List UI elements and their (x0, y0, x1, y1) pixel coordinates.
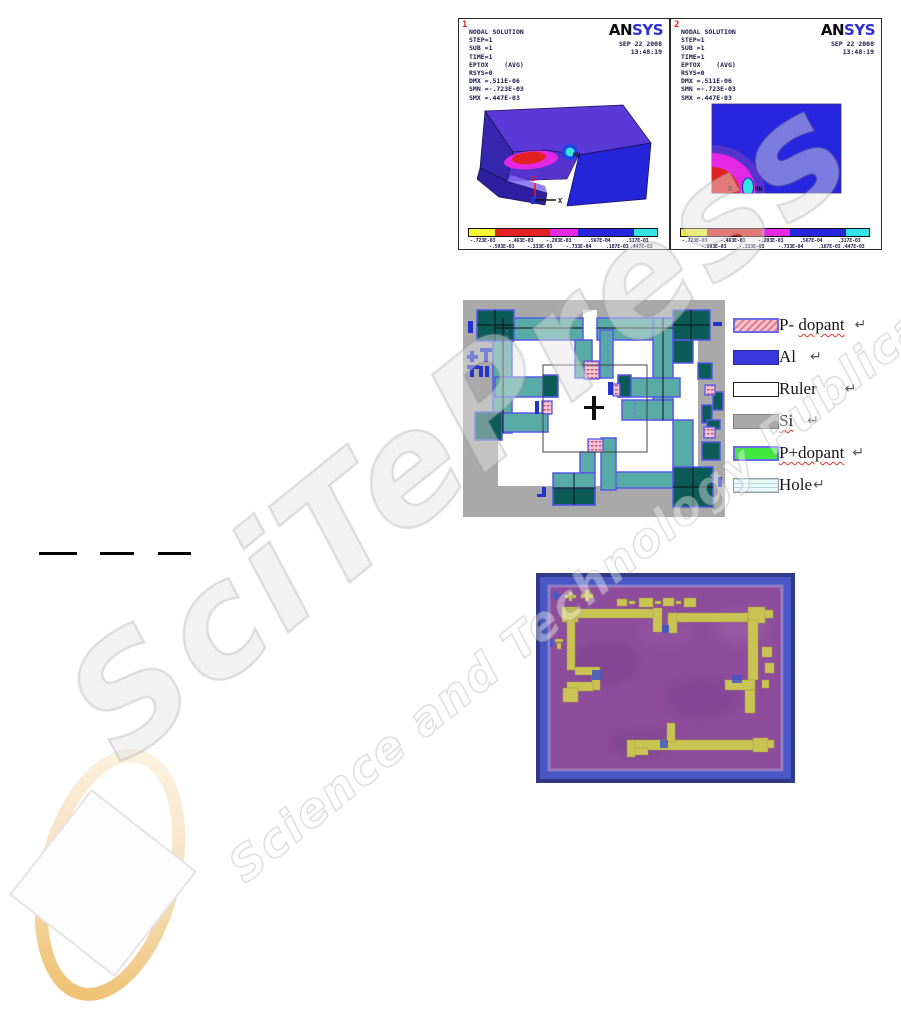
beam (600, 330, 613, 378)
pad (543, 375, 558, 397)
dopant-anchor (584, 361, 599, 379)
return-mark-icon: ↵ (807, 413, 819, 429)
colorbar-segment-red (707, 229, 762, 236)
axis-x-label: X (558, 197, 563, 205)
info-line: RSYS=0 (469, 69, 524, 77)
triad-origin-mark (531, 196, 535, 204)
panel-number: 2 (674, 20, 679, 30)
label-text: Ruler (779, 379, 817, 398)
ansys-logo-an: AN (609, 21, 632, 39)
alignment-mark (535, 401, 539, 414)
date-time: SEP 22 2008 13:48:19 (619, 40, 662, 56)
contour-colorbar: -.723E-03 -.463E-03 -.203E-03 .567E-04 .… (680, 228, 870, 252)
paper-page: 1 ANSYS SEP 22 2008 13:48:19 NODAL SOLUT… (0, 0, 901, 1025)
info-line: NODAL SOLUTION (469, 28, 524, 36)
swatch-p-dopant (733, 318, 779, 333)
info-line: EPTOX (AVG) (681, 61, 736, 69)
label-text-wavy: Si (779, 411, 793, 430)
info-line: NODAL SOLUTION (681, 28, 736, 36)
colorbar-segments (680, 228, 870, 237)
dopant-anchor (613, 384, 620, 396)
return-mark-icon: ↵ (845, 381, 857, 397)
colorbar-tick: -.333E-03 (527, 244, 552, 250)
pad (475, 412, 502, 440)
min-marker: MN (755, 186, 763, 193)
colorbar-tick: -.733E-04 (778, 244, 803, 250)
max-marker: MX (573, 152, 581, 159)
contour-colorbar: -.723E-03 -.463E-03 -.203E-03 .567E-04 .… (468, 228, 658, 252)
info-line: STEP=1 (681, 36, 736, 44)
date-time: SEP 22 2008 13:48:19 (831, 40, 874, 56)
swatch-hole (733, 478, 779, 493)
panel-number: 1 (462, 20, 467, 30)
contour-red (684, 167, 740, 219)
colorbar-segments (468, 228, 658, 237)
label-text-wavy: dopant (798, 315, 844, 334)
swatch-p-plus-dopant (733, 446, 779, 461)
return-mark-icon: ↵ (813, 477, 825, 493)
ansys-logo: ANSYS (821, 21, 875, 39)
alignment-mark (713, 322, 722, 326)
scitepress-logo-watermark (5, 735, 205, 1025)
mask-legend: P- dopant ↵ Al ↵ Ruler ↵ Si ↵ P+dopant ↵… (733, 309, 901, 501)
legend-label: P- dopant (779, 315, 845, 335)
dopant-anchor (704, 427, 715, 438)
return-mark-icon: ↵ (855, 317, 867, 333)
colorbar-segment-yellow (681, 229, 707, 236)
colorbar-segment-magenta (550, 229, 578, 236)
info-line: STEP=1 (469, 36, 524, 44)
metal-cross (569, 592, 572, 601)
chip-photo-figure (536, 573, 795, 783)
axis-z-label: Z (714, 177, 718, 184)
colorbar-tick: .187E-03 (818, 244, 840, 250)
legend-label: Al (779, 347, 796, 367)
label-text: P- (779, 315, 798, 334)
label-text-wavy: P+dopant (779, 443, 844, 462)
swatch-ruler (733, 382, 779, 397)
colorbar-tick: -.733E-04 (566, 244, 591, 250)
alignment-mark (470, 365, 474, 377)
equation-fraction-bar (39, 552, 77, 555)
time: 13:48:19 (831, 48, 874, 56)
label-text: Hole (779, 475, 812, 494)
info-line: RSYS=0 (681, 69, 736, 77)
logo-diamond (10, 790, 195, 975)
equation-fraction-bar (100, 552, 134, 555)
crosshair-horizontal (584, 406, 604, 409)
return-mark-icon: ↵ (852, 445, 864, 461)
fem-3d-model: MX Z X (459, 79, 669, 224)
pad (673, 340, 693, 363)
alignment-mark (718, 477, 722, 487)
fem-2d-section: Z X MN (671, 79, 881, 224)
alignment-mark (479, 366, 483, 377)
ansys-panel-2: 2 ANSYS SEP 22 2008 13:48:19 NODAL SOLUT… (670, 18, 882, 250)
colorbar-segment-magenta (762, 229, 790, 236)
date: SEP 22 2008 (619, 40, 662, 48)
equation-fraction-bar (158, 552, 191, 555)
legend-item-ruler: Ruler ↵ (733, 373, 901, 405)
legend-item-hole: Hole ↵ (733, 469, 901, 501)
legend-label: Ruler (779, 379, 817, 399)
info-line: SUB =1 (681, 44, 736, 52)
info-line: EPTOX (AVG) (469, 61, 524, 69)
legend-label: P+dopant (779, 443, 844, 463)
info-line: SUB =1 (469, 44, 524, 52)
axis-z-label: Z (531, 175, 535, 183)
colorbar-tick: .447E-03 (842, 244, 864, 250)
label-text: Al (779, 347, 796, 366)
alignment-mark (608, 382, 613, 395)
alignment-mark (484, 348, 488, 362)
alignment-mark (470, 351, 474, 362)
ansys-logo-sys: SYS (844, 21, 875, 39)
colorbar-tick: -.593E-03 (701, 244, 726, 250)
pad (698, 363, 712, 379)
alignment-mark (537, 494, 546, 497)
legend-item-al: Al ↵ (733, 341, 901, 373)
blue-cross (554, 591, 557, 600)
colorbar-tick: .447E-03 (630, 244, 652, 250)
legend-item-p-plus-dopant: P+dopant ↵ (733, 437, 901, 469)
mask-layout-figure (463, 300, 725, 517)
info-line: TIME=1 (469, 53, 524, 61)
dopant-anchor (588, 439, 603, 452)
colorbar-segment-blue (578, 229, 634, 236)
metal-cross (585, 590, 589, 601)
colorbar-tick: -.333E-03 (739, 244, 764, 250)
swatch-si (733, 414, 779, 429)
top-gap (583, 310, 597, 340)
colorbar-segment-blue (790, 229, 846, 236)
dopant-anchor (705, 385, 715, 395)
ansys-logo: ANSYS (609, 21, 663, 39)
time: 13:48:19 (619, 48, 662, 56)
pad (702, 442, 720, 460)
legend-item-si: Si ↵ (733, 405, 901, 437)
date: SEP 22 2008 (831, 40, 874, 48)
colorbar-segment-cyan (846, 229, 869, 236)
info-line: TIME=1 (681, 53, 736, 61)
legend-label: Si (779, 411, 793, 431)
ansys-logo-sys: SYS (632, 21, 663, 39)
swatch-al (733, 350, 779, 365)
alignment-mark (468, 321, 473, 333)
colorbar-tick: -.593E-03 (489, 244, 514, 250)
legend-label: Hole (779, 475, 812, 495)
legend-item-p-dopant: P- dopant ↵ (733, 309, 901, 341)
colorbar-segment-cyan (634, 229, 657, 236)
ansys-panel-1: 1 ANSYS SEP 22 2008 13:48:19 NODAL SOLUT… (458, 18, 670, 250)
beam (580, 452, 595, 473)
colorbar-segment-yellow (469, 229, 495, 236)
colorbar-tick: .187E-03 (606, 244, 628, 250)
colorbar-segment-red (495, 229, 550, 236)
alignment-mark (485, 366, 489, 377)
beam (502, 413, 548, 432)
return-mark-icon: ↵ (810, 349, 822, 365)
beam (673, 420, 693, 473)
ansys-logo-an: AN (821, 21, 844, 39)
